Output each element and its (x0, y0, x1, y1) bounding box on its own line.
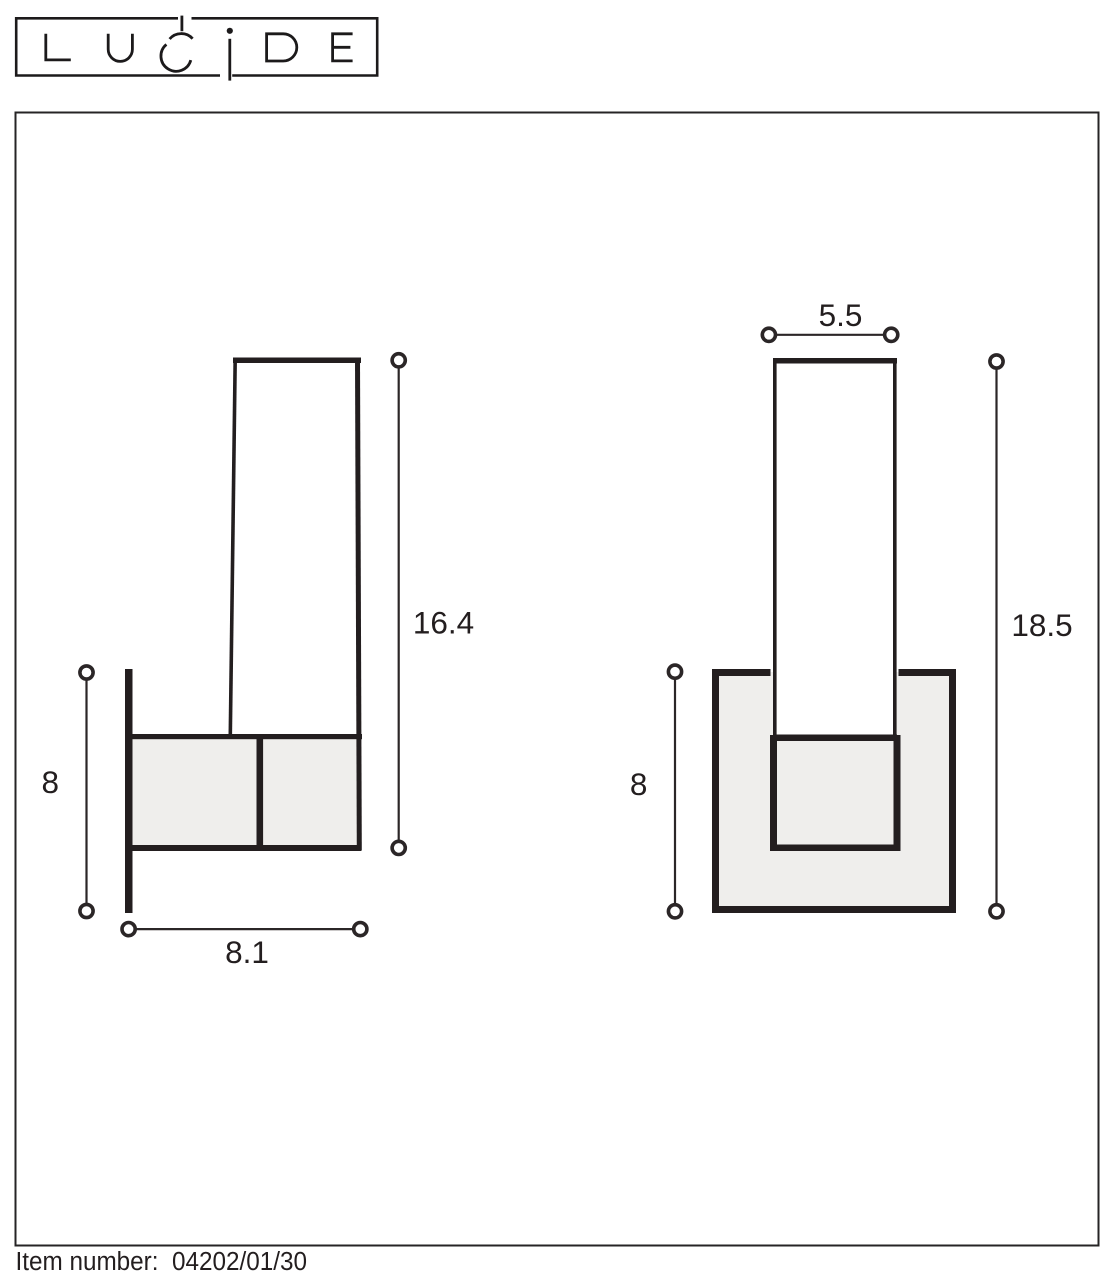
svg-text:8.1: 8.1 (225, 934, 269, 970)
svg-text:8: 8 (630, 766, 648, 802)
svg-text:16.4: 16.4 (413, 605, 474, 641)
svg-text:8: 8 (42, 764, 60, 800)
svg-text:5.5: 5.5 (819, 297, 863, 333)
svg-text:Item number: 04202/01/30: Item number: 04202/01/30 (16, 1248, 308, 1276)
svg-text:18.5: 18.5 (1011, 607, 1072, 643)
